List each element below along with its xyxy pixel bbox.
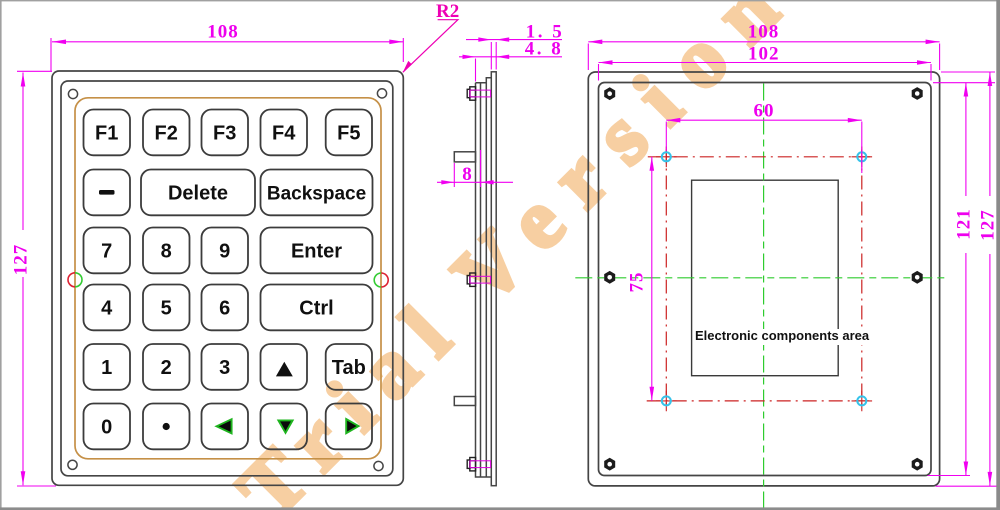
svg-text:Electronic components area: Electronic components area <box>695 328 870 343</box>
svg-text:Delete: Delete <box>168 183 228 205</box>
svg-text:F1: F1 <box>95 123 118 145</box>
svg-text:4: 4 <box>101 298 113 320</box>
svg-text:2: 2 <box>161 357 172 379</box>
svg-text:60: 60 <box>754 101 775 122</box>
svg-text:F2: F2 <box>155 123 178 145</box>
svg-text:F4: F4 <box>272 123 296 145</box>
svg-text:7: 7 <box>101 241 112 263</box>
svg-text:127: 127 <box>11 244 32 276</box>
svg-text:9: 9 <box>219 241 230 263</box>
svg-text:102: 102 <box>748 44 780 65</box>
svg-text:75: 75 <box>627 272 648 293</box>
svg-text:5: 5 <box>161 298 172 320</box>
svg-text:8: 8 <box>462 164 472 185</box>
svg-text:3: 3 <box>219 357 230 379</box>
svg-text:8: 8 <box>161 241 172 263</box>
svg-text:Ctrl: Ctrl <box>299 298 333 320</box>
svg-text:Enter: Enter <box>291 241 342 263</box>
svg-text:4. 8: 4. 8 <box>525 39 564 60</box>
svg-text:0: 0 <box>101 417 112 439</box>
svg-text:121: 121 <box>954 208 975 240</box>
svg-text:6: 6 <box>219 298 230 320</box>
svg-text:108: 108 <box>207 22 239 43</box>
svg-text:R2: R2 <box>436 1 459 22</box>
svg-text:Tab: Tab <box>332 357 366 379</box>
svg-text:127: 127 <box>978 209 999 241</box>
svg-text:108: 108 <box>748 22 780 43</box>
svg-text:F5: F5 <box>337 123 360 145</box>
svg-text:1: 1 <box>101 357 112 379</box>
svg-text:Backspace: Backspace <box>267 184 366 205</box>
svg-text:F3: F3 <box>213 123 236 145</box>
